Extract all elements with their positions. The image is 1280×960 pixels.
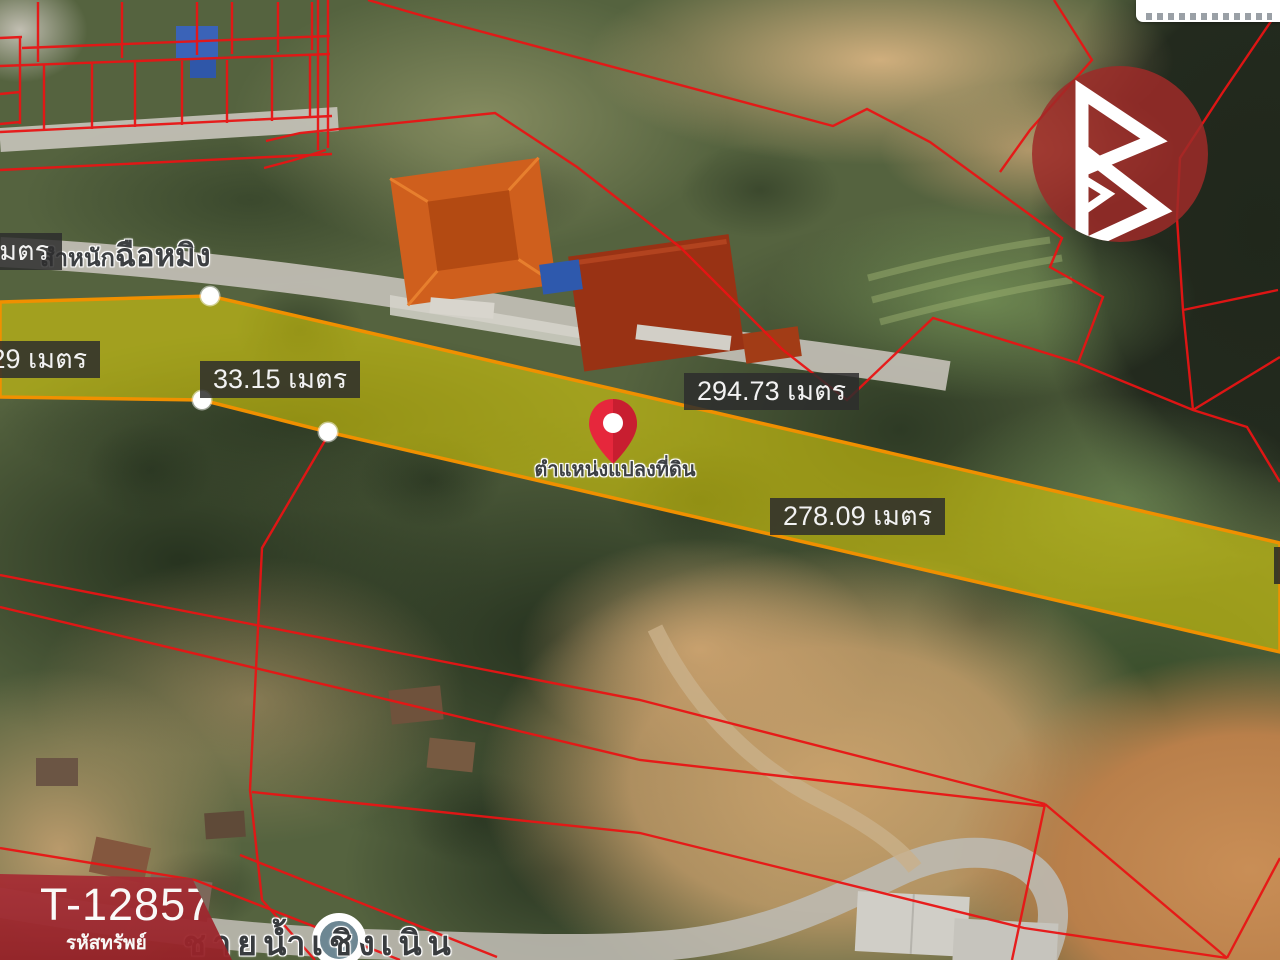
temple-building [390,158,556,306]
brand-logo [1032,66,1208,242]
blue-tarp [190,58,216,78]
logo-triangles-icon [1032,66,1208,242]
listing-map-screenshot: สำหนักฉือหมิง ชายน้ำเชิงเนิน .00 เมตร 5.… [0,0,1280,960]
truncated-text-fragment [1146,13,1272,20]
measurement-label-1: .00 เมตร [0,233,62,270]
pin-label: ตำแหน่งแปลงที่ดิน [520,453,710,485]
property-code-caption: รหัสทรัพย์ [66,928,147,958]
road-label-top: สำหนักฉือหมิง [40,230,211,280]
topright-info-bar [1136,0,1280,22]
blue-canopy [539,259,583,294]
measurement-label-4: 294.73 เมตร [684,373,859,410]
road-label-top-part2: ฉือหมิง [115,238,211,273]
measurement-label-5: 278.09 เมตร [770,498,945,535]
measurement-label-3: 33.15 เมตร [200,361,360,398]
large-roof-building [568,234,745,371]
measurement-label-2: 5.29 เมตร [0,341,100,378]
bottom-buildings [854,891,1059,960]
measurement-label-fragment [1274,547,1280,584]
